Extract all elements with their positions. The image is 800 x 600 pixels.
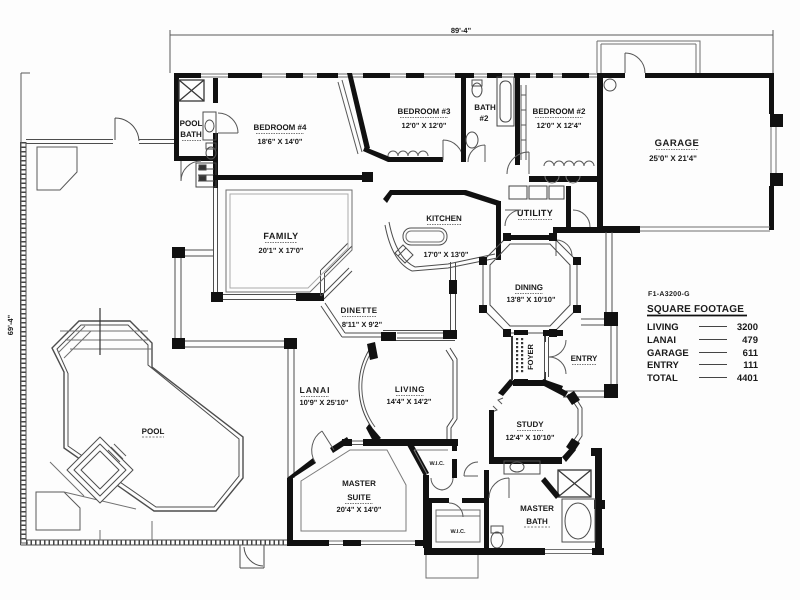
svg-text:LIVING: LIVING — [395, 385, 425, 394]
svg-text:LANAI: LANAI — [300, 385, 331, 395]
svg-text:FOYER: FOYER — [526, 344, 535, 370]
svg-text:LANAI: LANAI — [647, 335, 676, 346]
svg-text:25'0" X 21'4": 25'0" X 21'4" — [649, 154, 697, 163]
svg-text:13'8" X 10'10": 13'8" X 10'10" — [506, 295, 555, 304]
svg-text:BEDROOM #2: BEDROOM #2 — [533, 107, 586, 116]
svg-text:ENTRY: ENTRY — [647, 360, 680, 371]
svg-text:4401: 4401 — [737, 373, 759, 384]
svg-text:479: 479 — [742, 335, 758, 346]
svg-text:18'6" X 14'0": 18'6" X 14'0" — [258, 137, 303, 146]
svg-text:KITCHEN: KITCHEN — [426, 214, 462, 223]
svg-text:LIVING: LIVING — [647, 322, 679, 333]
svg-text:111: 111 — [743, 360, 759, 371]
svg-text:12'0" X 12'0": 12'0" X 12'0" — [402, 121, 447, 130]
svg-text:611: 611 — [743, 348, 759, 359]
svg-text:MASTER: MASTER — [342, 479, 376, 488]
svg-text:POOL: POOL — [142, 427, 165, 436]
svg-text:DINING: DINING — [515, 283, 543, 292]
svg-text:BATH: BATH — [474, 103, 496, 112]
svg-text:ENTRY: ENTRY — [571, 354, 598, 363]
svg-text:69'-4": 69'-4" — [6, 314, 15, 335]
svg-text:#2: #2 — [480, 114, 489, 123]
svg-text:FAMILY: FAMILY — [263, 231, 298, 241]
svg-text:SUITE: SUITE — [347, 493, 371, 502]
svg-text:BATH: BATH — [180, 130, 202, 139]
svg-text:F1-A3200-G: F1-A3200-G — [648, 291, 690, 298]
svg-text:10'9" X 25'10": 10'9" X 25'10" — [299, 398, 348, 407]
svg-text:UTILITY: UTILITY — [517, 208, 553, 218]
svg-text:TOTAL: TOTAL — [647, 373, 678, 384]
svg-text:20'1" X 17'0": 20'1" X 17'0" — [259, 246, 304, 255]
svg-text:BEDROOM #4: BEDROOM #4 — [254, 123, 307, 132]
svg-text:MASTER: MASTER — [520, 504, 554, 513]
svg-text:17'0" X 13'0": 17'0" X 13'0" — [424, 250, 469, 259]
svg-text:STUDY: STUDY — [516, 420, 544, 429]
svg-text:POOL: POOL — [180, 119, 203, 128]
svg-text:SQUARE FOOTAGE: SQUARE FOOTAGE — [647, 304, 744, 315]
svg-text:BEDROOM #3: BEDROOM #3 — [398, 107, 451, 116]
svg-text:12'4" X 10'10": 12'4" X 10'10" — [505, 433, 554, 442]
svg-text:W.I.C.: W.I.C. — [451, 529, 466, 535]
svg-text:BATH: BATH — [526, 517, 548, 526]
svg-text:12'0" X 12'4": 12'0" X 12'4" — [537, 121, 582, 130]
svg-text:20'4" X 14'0": 20'4" X 14'0" — [337, 505, 382, 514]
svg-text:W.I.C.: W.I.C. — [430, 461, 445, 467]
svg-text:GARAGE: GARAGE — [647, 348, 689, 359]
svg-text:89'-4": 89'-4" — [451, 26, 472, 35]
svg-text:14'4" X 14'2": 14'4" X 14'2" — [387, 397, 432, 406]
svg-text:DINETTE: DINETTE — [340, 306, 377, 315]
svg-text:8'11" X 9'2": 8'11" X 9'2" — [342, 320, 383, 329]
svg-text:GARAGE: GARAGE — [655, 138, 700, 149]
svg-text:3200: 3200 — [737, 322, 758, 333]
